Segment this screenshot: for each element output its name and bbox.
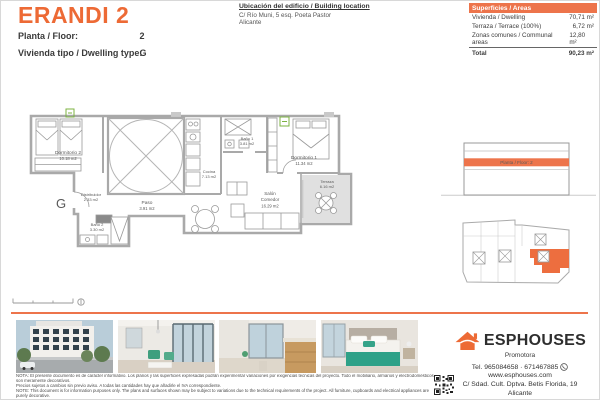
disclaimer-line: NOTE: This document is for information p… xyxy=(16,389,437,399)
scale-bar xyxy=(13,299,84,306)
dwelling-type-row: Vivienda tipo / Dwelling type: G xyxy=(18,48,147,58)
room-area: 11.34 m2 xyxy=(295,161,313,166)
room-area: 6.16 m2 xyxy=(320,184,335,189)
location-city: Alicante xyxy=(239,19,370,27)
brand-subtitle: Promotora xyxy=(444,352,596,359)
phone-numbers: Tel. 965084658 · 671467885 xyxy=(472,364,559,371)
house-icon xyxy=(454,330,481,351)
location-title: Ubicación del edificio / Building locati… xyxy=(239,3,370,11)
unit-letter: G xyxy=(56,196,66,211)
whatsapp-phone-icon xyxy=(560,363,568,371)
room-area: 10.18 m2 xyxy=(59,156,77,161)
brochure-page: ERANDI 2 Planta / Floor: 2 Vivienda tipo… xyxy=(0,0,600,400)
wall-tab xyxy=(171,112,181,117)
areas-table: Superficies / Areas Vivienda / Dwelling … xyxy=(469,3,597,57)
table-row-total: Total 90,23 m² xyxy=(469,48,597,57)
area-label: Zonas comunes / Communal areas xyxy=(472,32,569,46)
disclaimer-line: NOTA: El presente documento es de caráct… xyxy=(16,374,437,384)
room-area: 7.13 m2 xyxy=(202,174,217,179)
photo-bedroom xyxy=(321,320,418,373)
site-plan xyxy=(463,220,569,283)
location-street: C/ Río Muni, 5 esq. Poeta Pastor xyxy=(239,12,370,20)
disclaimer: NOTA: El presente documento es de caráct… xyxy=(16,374,437,400)
room-area: 3.30 m2 xyxy=(90,227,105,232)
photo-kitchen-interior xyxy=(219,320,316,373)
total-value: 90,23 m² xyxy=(569,50,594,57)
areas-table-header: Superficies / Areas xyxy=(469,3,597,13)
floor-value: 2 xyxy=(140,31,145,41)
photo-building-exterior xyxy=(16,320,113,373)
floor-row: Planta / Floor: 2 xyxy=(18,31,145,41)
brand-name: ESPHOUSES xyxy=(484,332,586,350)
table-row: Vivienda / Dwelling 70,71 m² xyxy=(469,13,597,22)
floor-plan: Dormitorio 2 10.18 m2 Distribuidor 2.33 … xyxy=(11,96,596,311)
promoter-block: ESPHOUSES Promotora Tel. 965084658 · 671… xyxy=(444,330,596,398)
room-area: 3.91 m2 xyxy=(139,206,155,211)
area-value: 70,71 m² xyxy=(569,14,594,21)
table-row: Zonas comunes / Communal areas 12,80 m² xyxy=(469,31,597,48)
page-title: ERANDI 2 xyxy=(18,2,129,29)
dwelling-type-value: G xyxy=(140,48,147,58)
area-label: Vivienda / Dwelling xyxy=(472,14,525,21)
contact-web: www.esphouses.com xyxy=(444,372,596,381)
dwelling-type-label: Vivienda tipo / Dwelling type: xyxy=(18,48,137,58)
room-label: Comedor xyxy=(261,197,280,202)
room-area: 16.29 m2 xyxy=(261,204,279,209)
area-value: 6,72 m² xyxy=(573,23,594,30)
area-label: Terraza / Terrace (100%) xyxy=(472,23,541,30)
contact-city: Alicante xyxy=(444,390,596,399)
photo-strip xyxy=(16,320,418,373)
room-area: 3.81 m2 xyxy=(240,141,255,146)
contact-address: C/ Sdad. Cult. Dptva. Betis Florida, 19 xyxy=(444,381,596,390)
building-elevation: Planta / Floor: 2 xyxy=(441,143,596,195)
building-location: Ubicación del edificio / Building locati… xyxy=(239,3,370,27)
contact-phone: Tel. 965084658 · 671467885 xyxy=(444,363,596,372)
total-label: Total xyxy=(472,50,487,57)
floor-label: Planta / Floor: xyxy=(18,31,137,41)
photo-living-room xyxy=(118,320,215,373)
area-value: 12,80 m² xyxy=(569,32,594,46)
table-row: Terraza / Terrace (100%) 6,72 m² xyxy=(469,22,597,31)
floor-band-label: Planta / Floor: 2 xyxy=(500,160,533,165)
divider-line xyxy=(11,312,588,314)
wall-tab xyxy=(324,112,334,117)
room-area: 2.33 m2 xyxy=(84,197,99,202)
room-label: Salón xyxy=(264,191,276,196)
